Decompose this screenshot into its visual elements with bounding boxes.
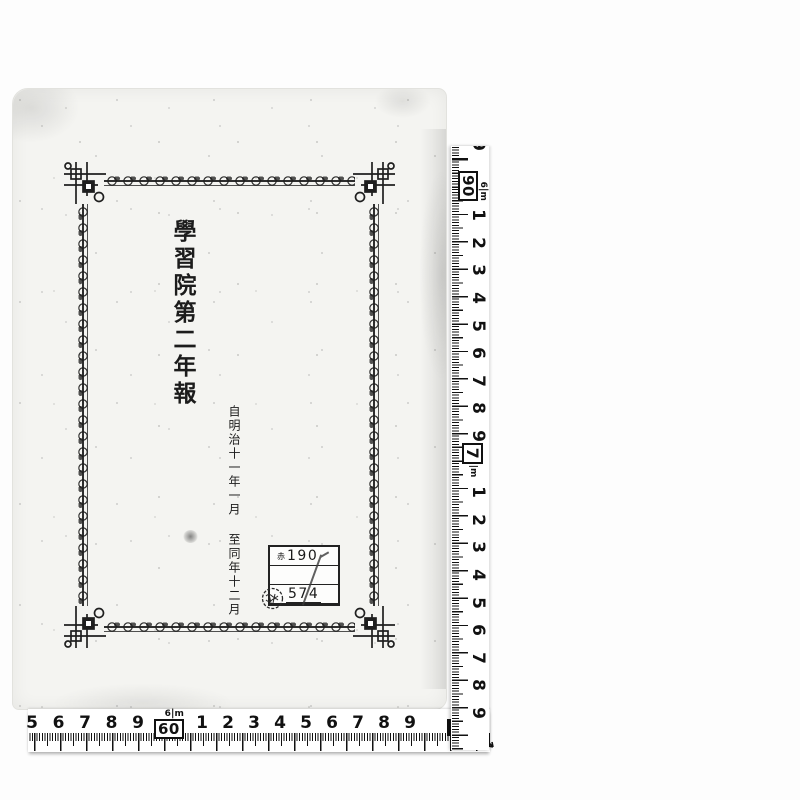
ruler-ticks-cm bbox=[28, 733, 490, 751]
book-cover-page: 學習院第二年報 自明治十一年一月 至同年十二月 赤 190 574 bbox=[12, 88, 447, 710]
date-range: 自明治十一年一月 至同年十二月 bbox=[203, 405, 243, 617]
meter-value: 7 bbox=[463, 443, 484, 464]
ruler-horizontal: 56789 6|m 60 123456789 6 7 bbox=[28, 709, 490, 752]
ruler-number: 1 bbox=[466, 481, 489, 503]
label-category: 赤 bbox=[277, 551, 285, 562]
library-stamp-icon bbox=[261, 587, 284, 610]
vine-border-left bbox=[77, 204, 90, 606]
meter-unit: |m bbox=[468, 465, 478, 478]
meter-unit: m bbox=[478, 192, 488, 201]
ruler-number: 3 bbox=[242, 711, 266, 735]
ruler-number: 5 bbox=[466, 592, 489, 614]
ruler-number: 1 bbox=[466, 204, 489, 226]
ruler-number: 3 bbox=[466, 536, 489, 558]
ruler-number: 8 bbox=[466, 397, 489, 419]
vine-border-right bbox=[368, 204, 381, 606]
ruler-number: 4 bbox=[466, 564, 489, 586]
ruler-number: 2 bbox=[216, 711, 240, 735]
ruler-number: 9 bbox=[126, 711, 150, 735]
ruler-vertical: 9 6|m 90 123456789 7 |m 123456789 bbox=[451, 146, 489, 750]
scanned-page: 學習院第二年報 自明治十一年一月 至同年十二月 赤 190 574 bbox=[0, 0, 800, 800]
corner-ornament-top-left bbox=[60, 158, 108, 206]
ruler-number: 7 bbox=[73, 711, 97, 735]
ruler-number: 1 bbox=[190, 711, 214, 735]
label-row-middle bbox=[270, 566, 338, 585]
ruler-number: 6 bbox=[47, 711, 71, 735]
corner-ornament-bottom-right bbox=[351, 604, 399, 652]
ruler-cm-numbers-lower: 123456789 bbox=[467, 480, 489, 725]
ruler-number: 5 bbox=[466, 315, 489, 337]
ruler-number: 4 bbox=[268, 711, 292, 735]
ruler-number: 8 bbox=[466, 674, 489, 696]
ruler-number: 6 bbox=[466, 342, 489, 364]
meter-unit: m bbox=[174, 709, 183, 719]
decimeter-value: 60 bbox=[154, 719, 184, 739]
ruler-number: 2 bbox=[466, 232, 489, 254]
ruler-number: 7 bbox=[346, 711, 370, 735]
ruler-decimeter-label: 6|m 60 bbox=[154, 709, 184, 739]
ruler-number: 9 bbox=[466, 702, 489, 724]
date-from: 自明治十一年一月 bbox=[226, 405, 243, 517]
ruler-number: 6 bbox=[320, 711, 344, 735]
ruler-number: 9 bbox=[398, 711, 422, 735]
ruler-number: 6 bbox=[466, 619, 489, 641]
ruler-number: 5 bbox=[20, 711, 44, 735]
ruler-number: 5 bbox=[294, 711, 318, 735]
ruler-decimeter-label: 6|m 90 bbox=[458, 168, 488, 204]
ruler-number: 3 bbox=[466, 259, 489, 281]
ruler-cm-numbers-right: 123456789 bbox=[190, 711, 422, 735]
ruler-number: 7 bbox=[466, 370, 489, 392]
ruler-number: 2 bbox=[466, 509, 489, 531]
label-upper-number: 190 bbox=[287, 548, 318, 564]
ruler-cm-numbers-upper: 123456789 bbox=[467, 203, 489, 448]
ruler-meter-label: 7 |m bbox=[460, 443, 486, 477]
vine-border-top bbox=[104, 175, 355, 188]
corner-ornament-bottom-left bbox=[60, 604, 108, 652]
ruler-top-partial-number: 9 bbox=[467, 146, 489, 157]
ink-smudge bbox=[183, 530, 198, 543]
date-to: 至同年十二月 bbox=[226, 533, 243, 617]
ruler-number: 8 bbox=[372, 711, 396, 735]
scan-shading bbox=[420, 129, 446, 689]
page-title: 學習院第二年報 bbox=[165, 219, 199, 511]
ruler-number: 7 bbox=[466, 647, 489, 669]
ruler-number: 8 bbox=[100, 711, 124, 735]
ruler-number: 4 bbox=[466, 287, 489, 309]
ruler-cm-numbers-left: 56789 bbox=[20, 711, 150, 735]
label-row-top: 赤 190 bbox=[270, 547, 338, 566]
decimeter-value: 90 bbox=[458, 171, 478, 201]
corner-ornament-top-right bbox=[351, 158, 399, 206]
vine-border-bottom bbox=[104, 621, 355, 634]
